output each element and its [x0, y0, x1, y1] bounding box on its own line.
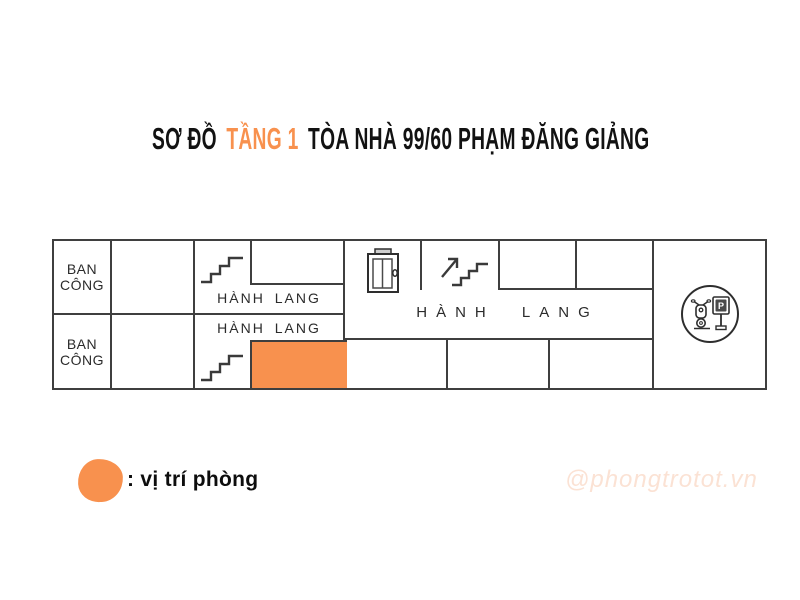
wall-segment	[498, 241, 500, 290]
wall-segment	[420, 241, 422, 290]
page-title: SƠ ĐỒ TẦNG 1 TÒA NHÀ 99/60 PHẠM ĐĂNG GIẢ…	[152, 121, 648, 157]
staircase-icon	[199, 346, 245, 384]
watermark-handle: @phongtrotot.vn	[565, 466, 758, 494]
floor-plan: BAN CÔNG BAN CÔNG HÀNH LANG HÀNH LANG HÀ…	[52, 239, 767, 390]
staircase-icon	[199, 248, 245, 286]
highlighted-room	[250, 340, 347, 388]
elevator-icon	[366, 248, 400, 294]
hallway-main-label: HÀNH LANG	[343, 288, 663, 338]
wall-segment	[343, 338, 654, 340]
balcony-top-label: BAN CÔNG	[54, 241, 110, 312]
wall-segment	[446, 338, 448, 388]
motorbike-parking-icon: P	[681, 285, 739, 343]
title-suffix: TÒA NHÀ 99/60 PHẠM ĐĂNG GIẢNG	[308, 121, 649, 156]
hallway-lower-label: HÀNH LANG	[193, 315, 345, 340]
staircase-up-arrow-icon	[436, 249, 490, 289]
hallway-upper-label: HÀNH LANG	[193, 284, 345, 312]
legend-label: : vị trí phòng	[127, 468, 258, 492]
parking-sign-letter: P	[718, 301, 724, 311]
wall-segment	[548, 338, 550, 388]
wall-segment	[575, 241, 577, 288]
title-prefix: SƠ ĐỒ	[152, 121, 217, 156]
legend-room-swatch	[77, 458, 124, 503]
title-floor-highlight: TẦNG 1	[226, 121, 298, 156]
balcony-bottom-label: BAN CÔNG	[54, 315, 110, 388]
wall-segment	[250, 241, 252, 285]
